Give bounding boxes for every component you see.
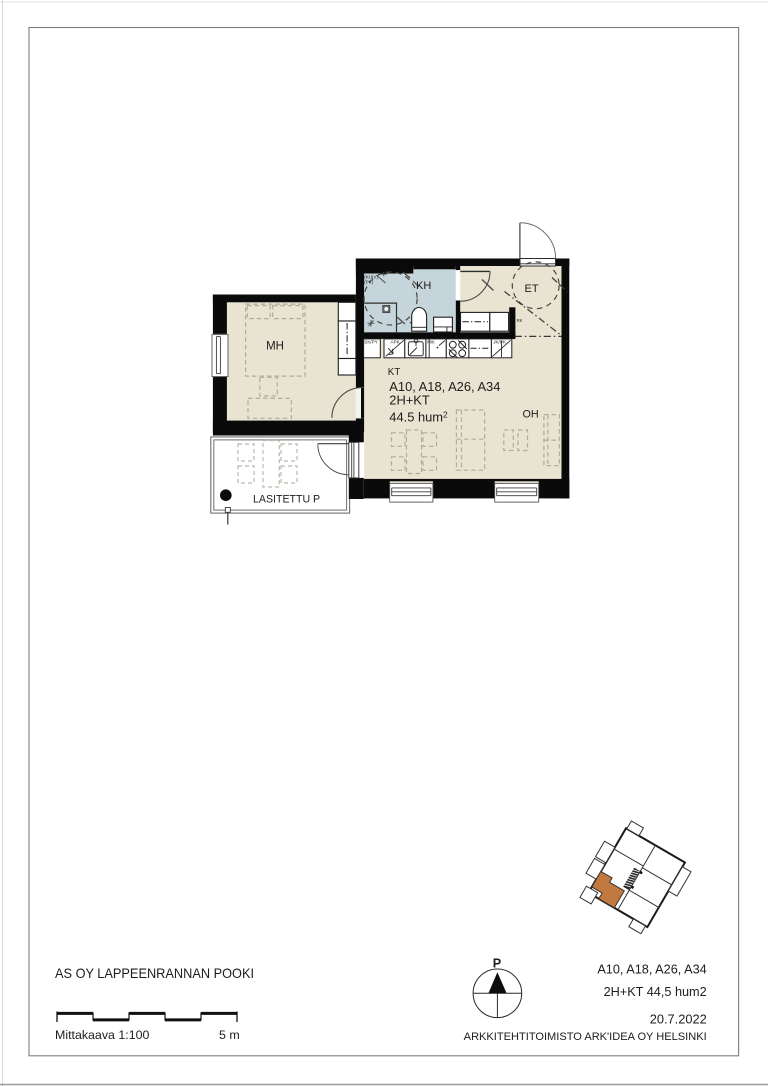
svg-text:2H+KT 44,5 hum2: 2H+KT 44,5 hum2 [604,985,707,999]
svg-text:2H+KT: 2H+KT [389,393,430,408]
svg-text:5 m: 5 m [219,1028,240,1042]
svg-text:KH: KH [416,280,431,292]
svg-text:MH: MH [266,341,284,353]
svg-text:P: P [493,957,501,971]
svg-text:44.5 hum2: 44.5 hum2 [389,409,448,424]
svg-text:SK/PY: SK/PY [364,340,378,345]
svg-text:KT: KT [388,367,401,378]
svg-text:OH: OH [523,409,539,421]
svg-text:LASITETTU P: LASITETTU P [253,493,320,505]
svg-text:ARKKITEHTITOIMISTO ARK'IDEA OY: ARKKITEHTITOIMISTO ARK'IDEA OY HELSINKI [464,1031,707,1043]
svg-text:JK/PK: JK/PK [493,340,507,345]
svg-text:20.7.2022: 20.7.2022 [650,1012,707,1027]
svg-text:RK: RK [517,318,523,323]
svg-text:A10, A18, A26, A34: A10, A18, A26, A34 [597,962,706,976]
svg-text:(PK): (PK) [364,279,374,284]
svg-text:APK: APK [391,340,401,345]
svg-text:AS OY LAPPEENRANNAN POOKI: AS OY LAPPEENRANNAN POOKI [55,965,254,981]
svg-text:ET: ET [525,283,539,295]
svg-text:MIK: MIK [427,339,435,344]
svg-text:Mittakaava 1:100: Mittakaava 1:100 [55,1028,149,1042]
